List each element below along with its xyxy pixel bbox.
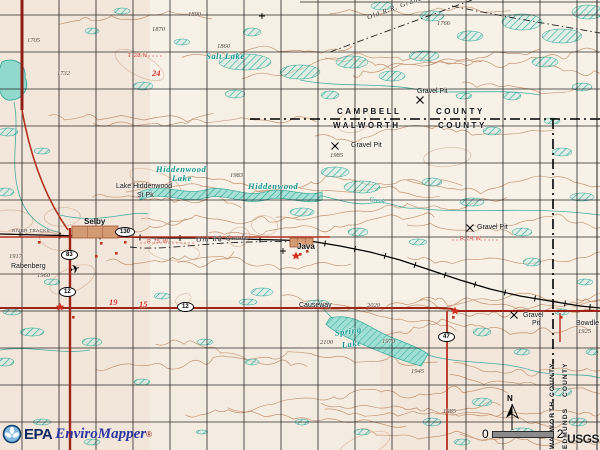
map-viewport[interactable]: CAMPBELLCOUNTYWALWORTHCOUNTYCOUNTYWALWOR… [0,0,600,450]
town-area-selby [72,226,118,238]
epa-logo-icon [2,424,22,444]
usgs-attribution: USGS [567,432,599,446]
north-arrow-icon [498,394,528,434]
town-area-java [290,238,313,247]
epa-enviromapper-logo: EPA EnviroMapper ® [2,423,152,445]
epa-text: EPA [24,426,52,443]
mine-icon [467,225,474,232]
scale-min: 0 [482,427,489,441]
north-label: N [507,394,513,403]
topo-map [0,0,600,450]
mine-icon [417,97,424,104]
product-name: EnviroMapper [55,426,146,443]
scale-max: 2 [557,427,564,441]
registered-mark: ® [146,430,152,439]
north-arrow: N [498,394,528,434]
mine-icon [332,143,339,150]
